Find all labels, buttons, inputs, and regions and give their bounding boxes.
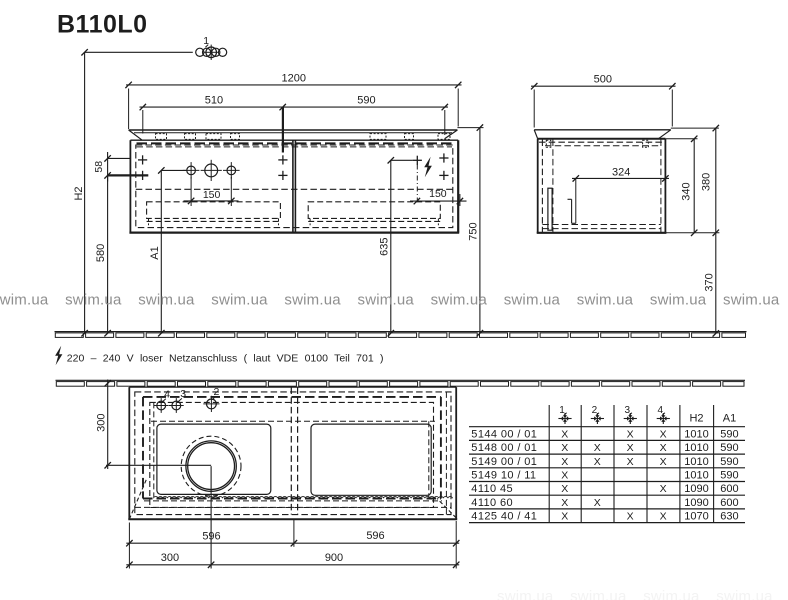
svg-text:750: 750 [468,222,480,240]
svg-text:635: 635 [379,238,391,256]
svg-text:1200: 1200 [282,72,306,84]
svg-text:B110L0: B110L0 [57,11,148,39]
svg-text:900: 900 [325,552,343,564]
svg-text:swim.ua: swim.ua [497,588,554,600]
svg-text:300: 300 [161,552,179,564]
svg-text:swim.ua: swim.ua [358,292,415,309]
svg-text:1010: 1010 [684,470,708,482]
svg-text:swim.ua: swim.ua [138,292,195,309]
svg-text:X: X [561,442,568,454]
svg-text:58: 58 [93,161,105,173]
svg-text:4125 40 / 41: 4125 40 / 41 [471,511,537,523]
svg-text:596: 596 [202,530,220,542]
svg-text:X: X [627,428,634,440]
svg-text:370: 370 [704,273,716,291]
svg-text:X: X [561,497,568,509]
svg-text:596: 596 [366,530,384,542]
svg-text:X: X [627,511,634,523]
svg-text:swim.ua: swim.ua [211,292,268,309]
svg-text:150: 150 [203,189,221,201]
svg-text:5149 10 / 11: 5149 10 / 11 [471,470,536,482]
svg-text:swim.ua: swim.ua [504,292,561,309]
svg-text:X: X [594,442,601,454]
svg-text:H2: H2 [73,186,85,200]
svg-text:590: 590 [720,428,738,440]
svg-text:X: X [561,483,568,495]
svg-text:220 – 240 V loser Netzanschlus: 220 – 240 V loser Netzanschluss ( laut V… [67,353,384,365]
svg-text:A1: A1 [149,246,161,259]
svg-text:X: X [561,470,568,482]
svg-text:X: X [660,483,667,495]
svg-text:4110 45: 4110 45 [471,483,513,495]
svg-text:1010: 1010 [684,428,708,440]
svg-text:H2: H2 [689,412,703,424]
svg-text:swim.ua: swim.ua [65,292,122,309]
svg-text:X: X [594,497,601,509]
svg-text:630: 630 [720,511,738,523]
svg-text:1090: 1090 [684,497,708,509]
svg-text:X: X [561,511,568,523]
svg-text:1070: 1070 [684,511,708,523]
svg-text:X: X [660,442,667,454]
svg-text:5148 00 / 01: 5148 00 / 01 [471,442,537,454]
svg-text:500: 500 [594,74,612,86]
svg-text:1: 1 [203,35,209,47]
svg-text:swim.ua: swim.ua [431,292,488,309]
svg-text:X: X [660,456,667,468]
svg-text:X: X [561,456,568,468]
svg-text:510: 510 [205,95,223,107]
svg-text:5144 00 / 01: 5144 00 / 01 [471,428,537,440]
svg-text:380: 380 [701,173,713,191]
svg-text:5149 00 / 01: 5149 00 / 01 [471,456,537,468]
svg-text:4110 60: 4110 60 [471,497,513,509]
svg-text:swim.ua: swim.ua [716,588,773,600]
svg-text:swim.ua: swim.ua [723,292,780,309]
svg-text:590: 590 [720,456,738,468]
svg-text:swim.ua: swim.ua [570,588,627,600]
svg-text:1010: 1010 [684,456,708,468]
svg-text:4: 4 [164,388,170,400]
svg-text:swim.ua: swim.ua [643,588,700,600]
svg-text:324: 324 [612,167,630,179]
svg-text:swim.ua: swim.ua [284,292,341,309]
svg-text:2: 2 [213,386,219,398]
svg-text:1010: 1010 [684,442,708,454]
svg-text:3: 3 [180,388,186,400]
svg-text:A1: A1 [723,412,736,424]
svg-text:swim.ua: swim.ua [0,292,49,309]
svg-text:X: X [561,428,568,440]
svg-text:1090: 1090 [684,483,708,495]
svg-text:600: 600 [720,483,738,495]
svg-text:600: 600 [720,497,738,509]
svg-text:X: X [660,511,667,523]
svg-text:300: 300 [95,414,107,432]
svg-text:X: X [627,456,634,468]
svg-text:590: 590 [720,442,738,454]
svg-text:swim.ua: swim.ua [577,292,634,309]
svg-text:340: 340 [680,182,692,200]
svg-text:590: 590 [357,95,375,107]
svg-text:swim.ua: swim.ua [650,292,707,309]
svg-text:590: 590 [720,470,738,482]
svg-text:X: X [594,456,601,468]
svg-text:580: 580 [95,244,107,262]
svg-text:150: 150 [429,188,447,200]
svg-text:X: X [627,442,634,454]
svg-text:X: X [660,428,667,440]
